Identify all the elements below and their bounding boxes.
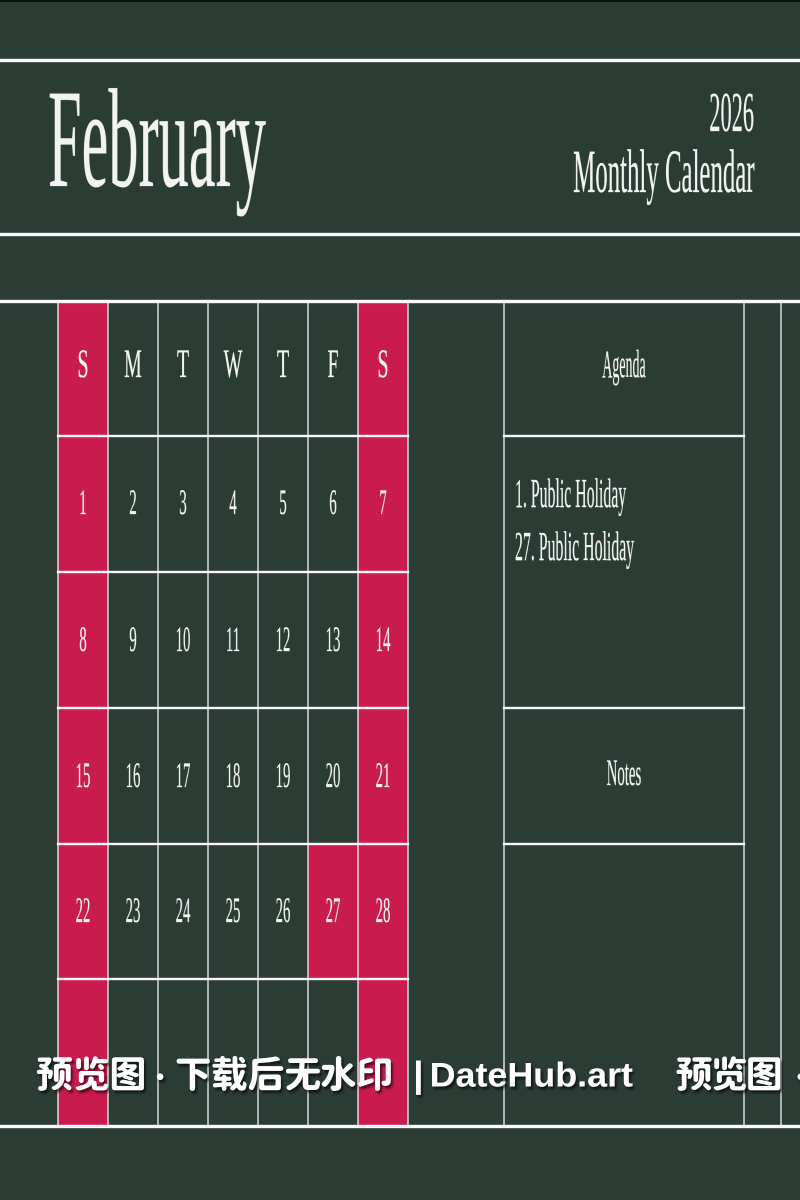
svg-text:DateHub.art: DateHub.art [430,1056,634,1094]
svg-text:|: | [413,1054,423,1096]
